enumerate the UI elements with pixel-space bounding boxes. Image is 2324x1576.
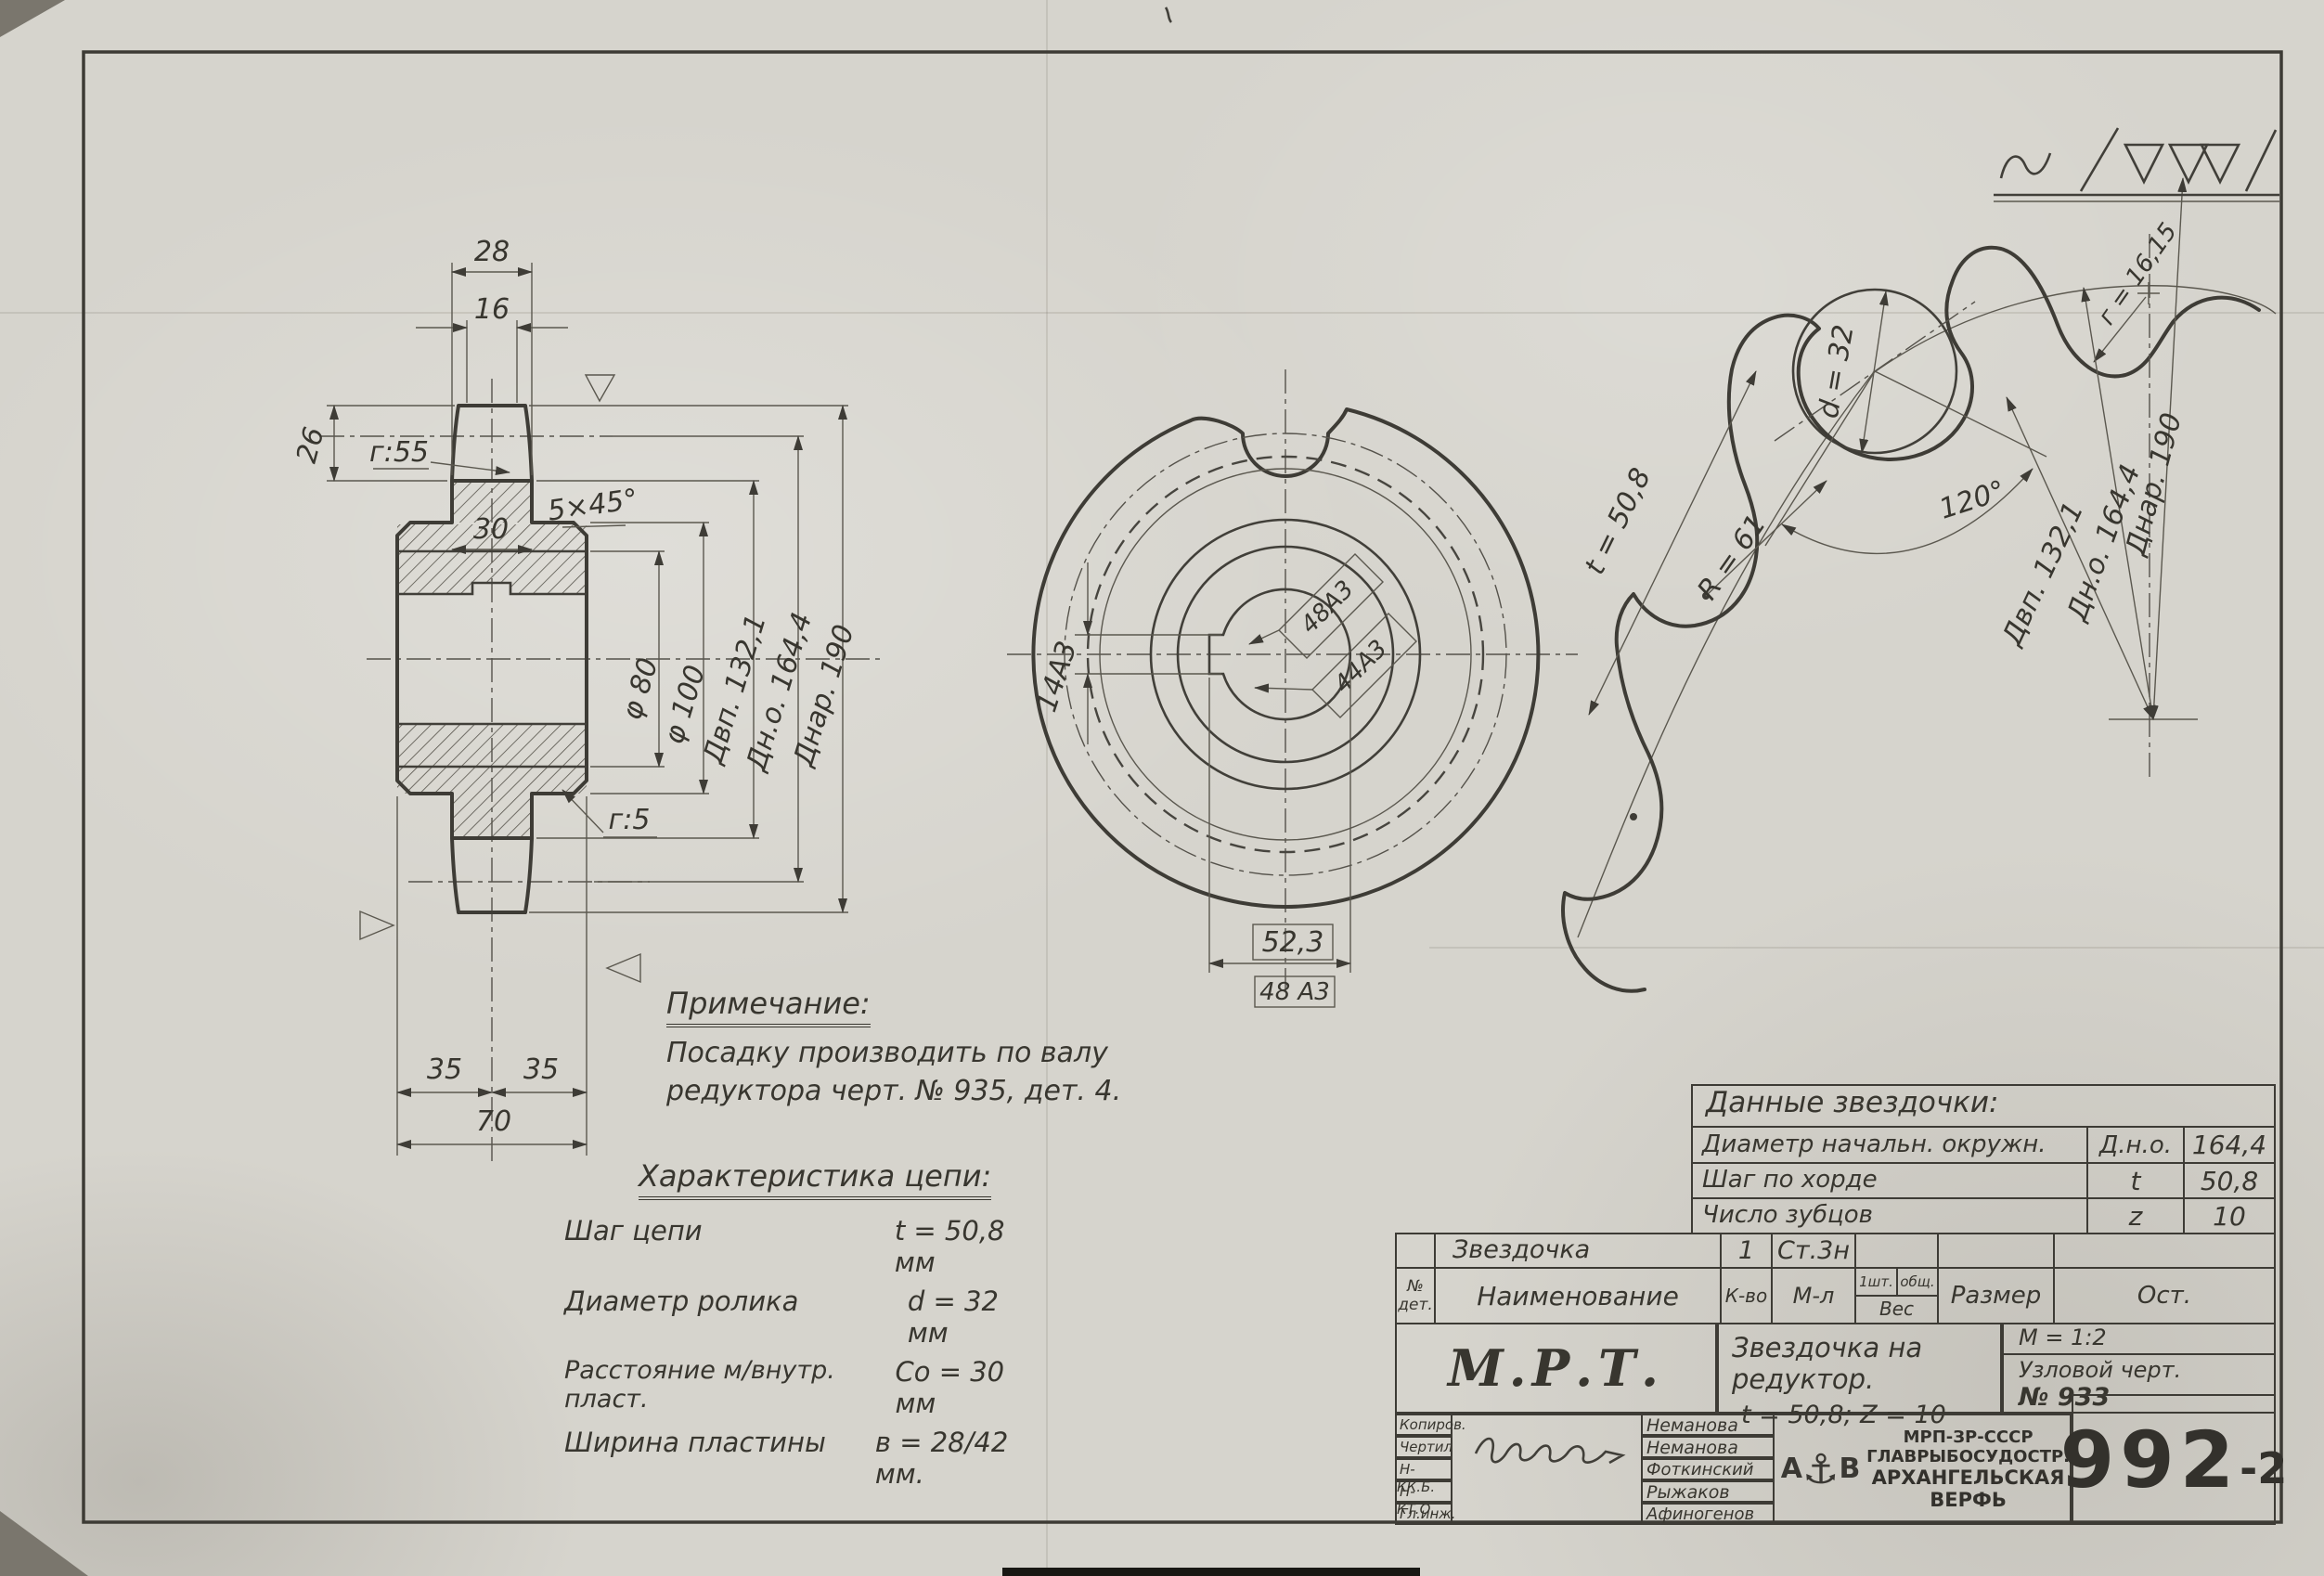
header-weight-total: общ. [1900,1273,1934,1290]
radius-5: г:5 [609,804,651,836]
dim-70: 70 [476,1105,511,1138]
header-num: дет. [1398,1296,1433,1314]
org-cell: А⚓В МРП-ЗР-СССР ГЛАВРЫБОСУДОСТР. АРХАНГЕ… [1773,1414,2072,1525]
chain-spec-row: Ширина пластины в = 28/42 мм. [564,1427,1047,1490]
front-view [1007,369,1578,995]
org-line: ВЕРФЬ [1866,1489,2070,1511]
dim-d80: φ 80 [615,654,665,724]
chain-spec-name: Шаг цепи [564,1215,895,1278]
data-row-value: 50,8 [2201,1166,2258,1196]
header-material: М-л [1793,1283,1835,1309]
table-title: Данные звездочки: [1706,1086,1999,1119]
shipyard-logo-icon: А⚓В [1775,1446,1866,1493]
dim-keyway-width: 14А3 [1030,638,1083,717]
fit-44A3: 44А3 [1329,635,1393,699]
chain-spec-name: Диаметр ролика [564,1285,908,1349]
data-row-name: Диаметр начальн. окружн. [1702,1130,2046,1158]
header-weight-unit: 1шт. [1859,1273,1893,1290]
note-block: Примечание: Посадку производить по валу … [666,986,1121,1107]
roughness-triangle-icon [2201,145,2239,182]
signature-cell [1451,1414,1643,1525]
chamfer-5x45: 5×45° [546,483,639,527]
header-name: Наименование [1477,1281,1679,1311]
drawing-number-cell: 992 -2 [2072,1394,2276,1525]
org-line: АРХАНГЕЛЬСКАЯ [1866,1466,2070,1489]
dim-pitch-t: t = 50,8 [1579,463,1658,580]
sign-name: Неманова [1646,1415,1738,1436]
dim-35-right: 35 [523,1053,559,1086]
drawing-title: Звездочка на редуктор. [1732,1332,2000,1395]
bore-ref: 48 А3 [1259,978,1330,1006]
node-drawing-ref: Узловой черт. [2019,1357,2274,1383]
paper-mark-top [1166,7,1171,22]
org-abbreviation: М.Р.Т. [1448,1338,1664,1398]
dim-keyway-depth: 52,3 [1262,926,1324,959]
chain-spec-title: Характеристика цепи: [639,1158,991,1200]
table-title-cell: Данные звездочки: [1691,1084,2276,1128]
drawing-number: 992 [2060,1415,2240,1505]
tooth-detail-dimensions: t = 50,8 d = 32 R = 61 120° г = 16,15 Дв… [1579,178,2188,719]
part-material: Ст.3н [1777,1236,1850,1265]
data-row-name: Шаг по хорде [1702,1166,1878,1194]
surface-finish-triangle-icon [607,954,640,982]
chain-spec-value: t = 50,8 мм [895,1215,1047,1278]
anchor-icon: ⚓ [1802,1446,1839,1493]
data-row-value: 164,4 [2192,1130,2266,1160]
sign-name: Фоткинский [1646,1460,1754,1479]
dim-28: 28 [474,236,510,268]
blueprint-sheet: 28 16 26 г:55 30 5×45° φ 80 φ 100 Двп. 1 [0,0,2324,1576]
drawing-number-suffix: -2 [2240,1443,2287,1493]
chain-spec-row: Диаметр ролика d = 32 мм [564,1285,1047,1349]
data-row-symbol: z [2129,1201,2143,1232]
data-row-value: 10 [2213,1201,2246,1232]
dim-16: 16 [474,293,510,326]
scale: М = 1:2 [2019,1324,2107,1350]
chain-spec-name: Расстояние м/внутр. пласт. [564,1356,896,1419]
chain-spec-row: Расстояние м/внутр. пласт. Cо = 30 мм [564,1356,1047,1419]
header-rest: Ост. [2137,1282,2191,1310]
surface-finish-triangle-icon [586,375,614,401]
sign-name: Афиногенов [1646,1505,1754,1524]
chain-spec-name: Ширина пластины [564,1427,875,1490]
chain-spec-value: в = 28/42 мм. [875,1427,1047,1490]
header-size: Размер [1951,1282,2042,1310]
note-title: Примечание: [666,986,871,1027]
sign-role: Чертил [1400,1439,1452,1455]
roughness-triangle-icon [2170,145,2207,182]
logo-letter-a: А [1781,1453,1802,1485]
roughness-wave-icon [2001,153,2050,178]
data-row-symbol: Д.н.о. [2099,1131,2172,1159]
radius-55: г:55 [369,436,429,469]
part-qty: 1 [1738,1236,1754,1265]
header-weight: Вес [1879,1298,1914,1320]
data-row-symbol: t [2131,1166,2141,1196]
chain-spec-value: d = 32 мм [908,1285,1047,1349]
note-line1: Посадку производить по валу [666,1037,1121,1069]
chain-spec-block: Характеристика цепи: Шаг цепи t = 50,8 м… [564,1158,1047,1490]
front-view-dimensions: 14А3 48А3 44А3 52,3 48 А3 [1030,554,1416,1007]
sign-name: Неманова [1646,1438,1738,1458]
dim-35-left: 35 [427,1053,462,1086]
sign-role: Гл.инж. [1400,1505,1456,1522]
roughness-note [1994,128,2279,201]
dim-root-radius: г = 16,15 [2093,218,2183,330]
org-line: ГЛАВРЫБОСУДОСТР. [1866,1447,2070,1466]
logo-letter-v: В [1839,1453,1860,1485]
dim-seat-angle: 120° [1935,474,2009,526]
chain-spec-row: Шаг цепи t = 50,8 мм [564,1215,1047,1278]
header-qty: К-во [1725,1285,1767,1307]
fit-48A3: 48А3 [1296,575,1360,639]
org-line: МРП-ЗР-СССР [1866,1427,2070,1447]
tooth-detail-view [1563,234,2276,991]
note-line2: редуктора черт. № 935, дет. 4. [666,1075,1121,1107]
roughness-triangle-icon [2125,145,2163,182]
dim-30: 30 [473,513,509,546]
part-name: Звездочка [1452,1235,1590,1264]
dim-26: 26 [290,424,331,467]
data-row-name: Число зубцов [1702,1201,1873,1229]
header-num: № [1407,1277,1424,1296]
sign-name: Рыжаков [1646,1482,1730,1503]
chain-spec-value: Cо = 30 мм [896,1356,1048,1419]
surface-finish-triangle-icon [360,911,394,939]
